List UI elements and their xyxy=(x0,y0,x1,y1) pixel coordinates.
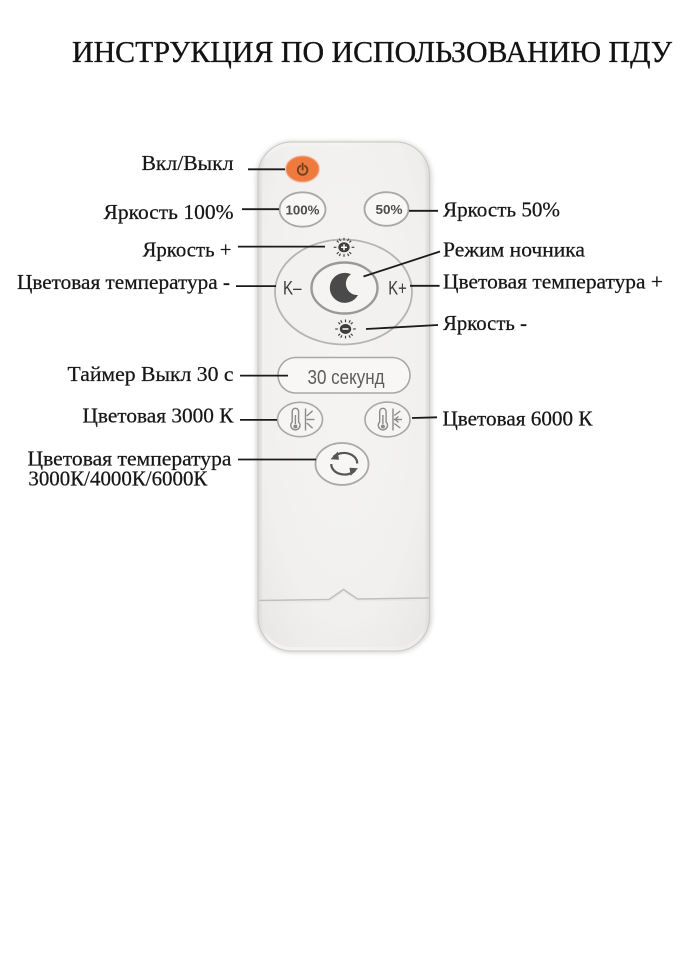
svg-text:Яркость 50%: Яркость 50% xyxy=(443,197,560,221)
svg-text:Цветовая температура +: Цветовая температура + xyxy=(443,269,663,293)
svg-text:K–: K– xyxy=(283,278,302,299)
svg-text:30 секунд: 30 секунд xyxy=(308,367,385,389)
svg-text:100%: 100% xyxy=(286,202,320,217)
svg-text:ИНСТРУКЦИЯ ПО ИСПОЛЬЗОВАНИЮ ПД: ИНСТРУКЦИЯ ПО ИСПОЛЬЗОВАНИЮ ПДУ xyxy=(72,34,672,69)
svg-text:Цветовая 3000 К: Цветовая 3000 К xyxy=(83,404,235,428)
svg-text:Таймер Выкл 30 с: Таймер Выкл 30 с xyxy=(68,362,234,386)
svg-text:Вкл/Выкл: Вкл/Выкл xyxy=(142,151,234,175)
svg-text:Цветовая 6000 К: Цветовая 6000 К xyxy=(443,406,594,430)
svg-text:Цветовая температура -: Цветовая температура - xyxy=(17,270,230,294)
svg-text:Яркость -: Яркость - xyxy=(443,311,527,335)
svg-text:K+: K+ xyxy=(388,278,407,299)
svg-text:Яркость 100%: Яркость 100% xyxy=(104,200,234,224)
svg-text:Режим ночника: Режим ночника xyxy=(443,238,586,262)
svg-text:50%: 50% xyxy=(376,202,403,217)
svg-text:3000К/4000К/6000К: 3000К/4000К/6000К xyxy=(28,467,208,491)
svg-text:Яркость +: Яркость + xyxy=(143,237,232,261)
